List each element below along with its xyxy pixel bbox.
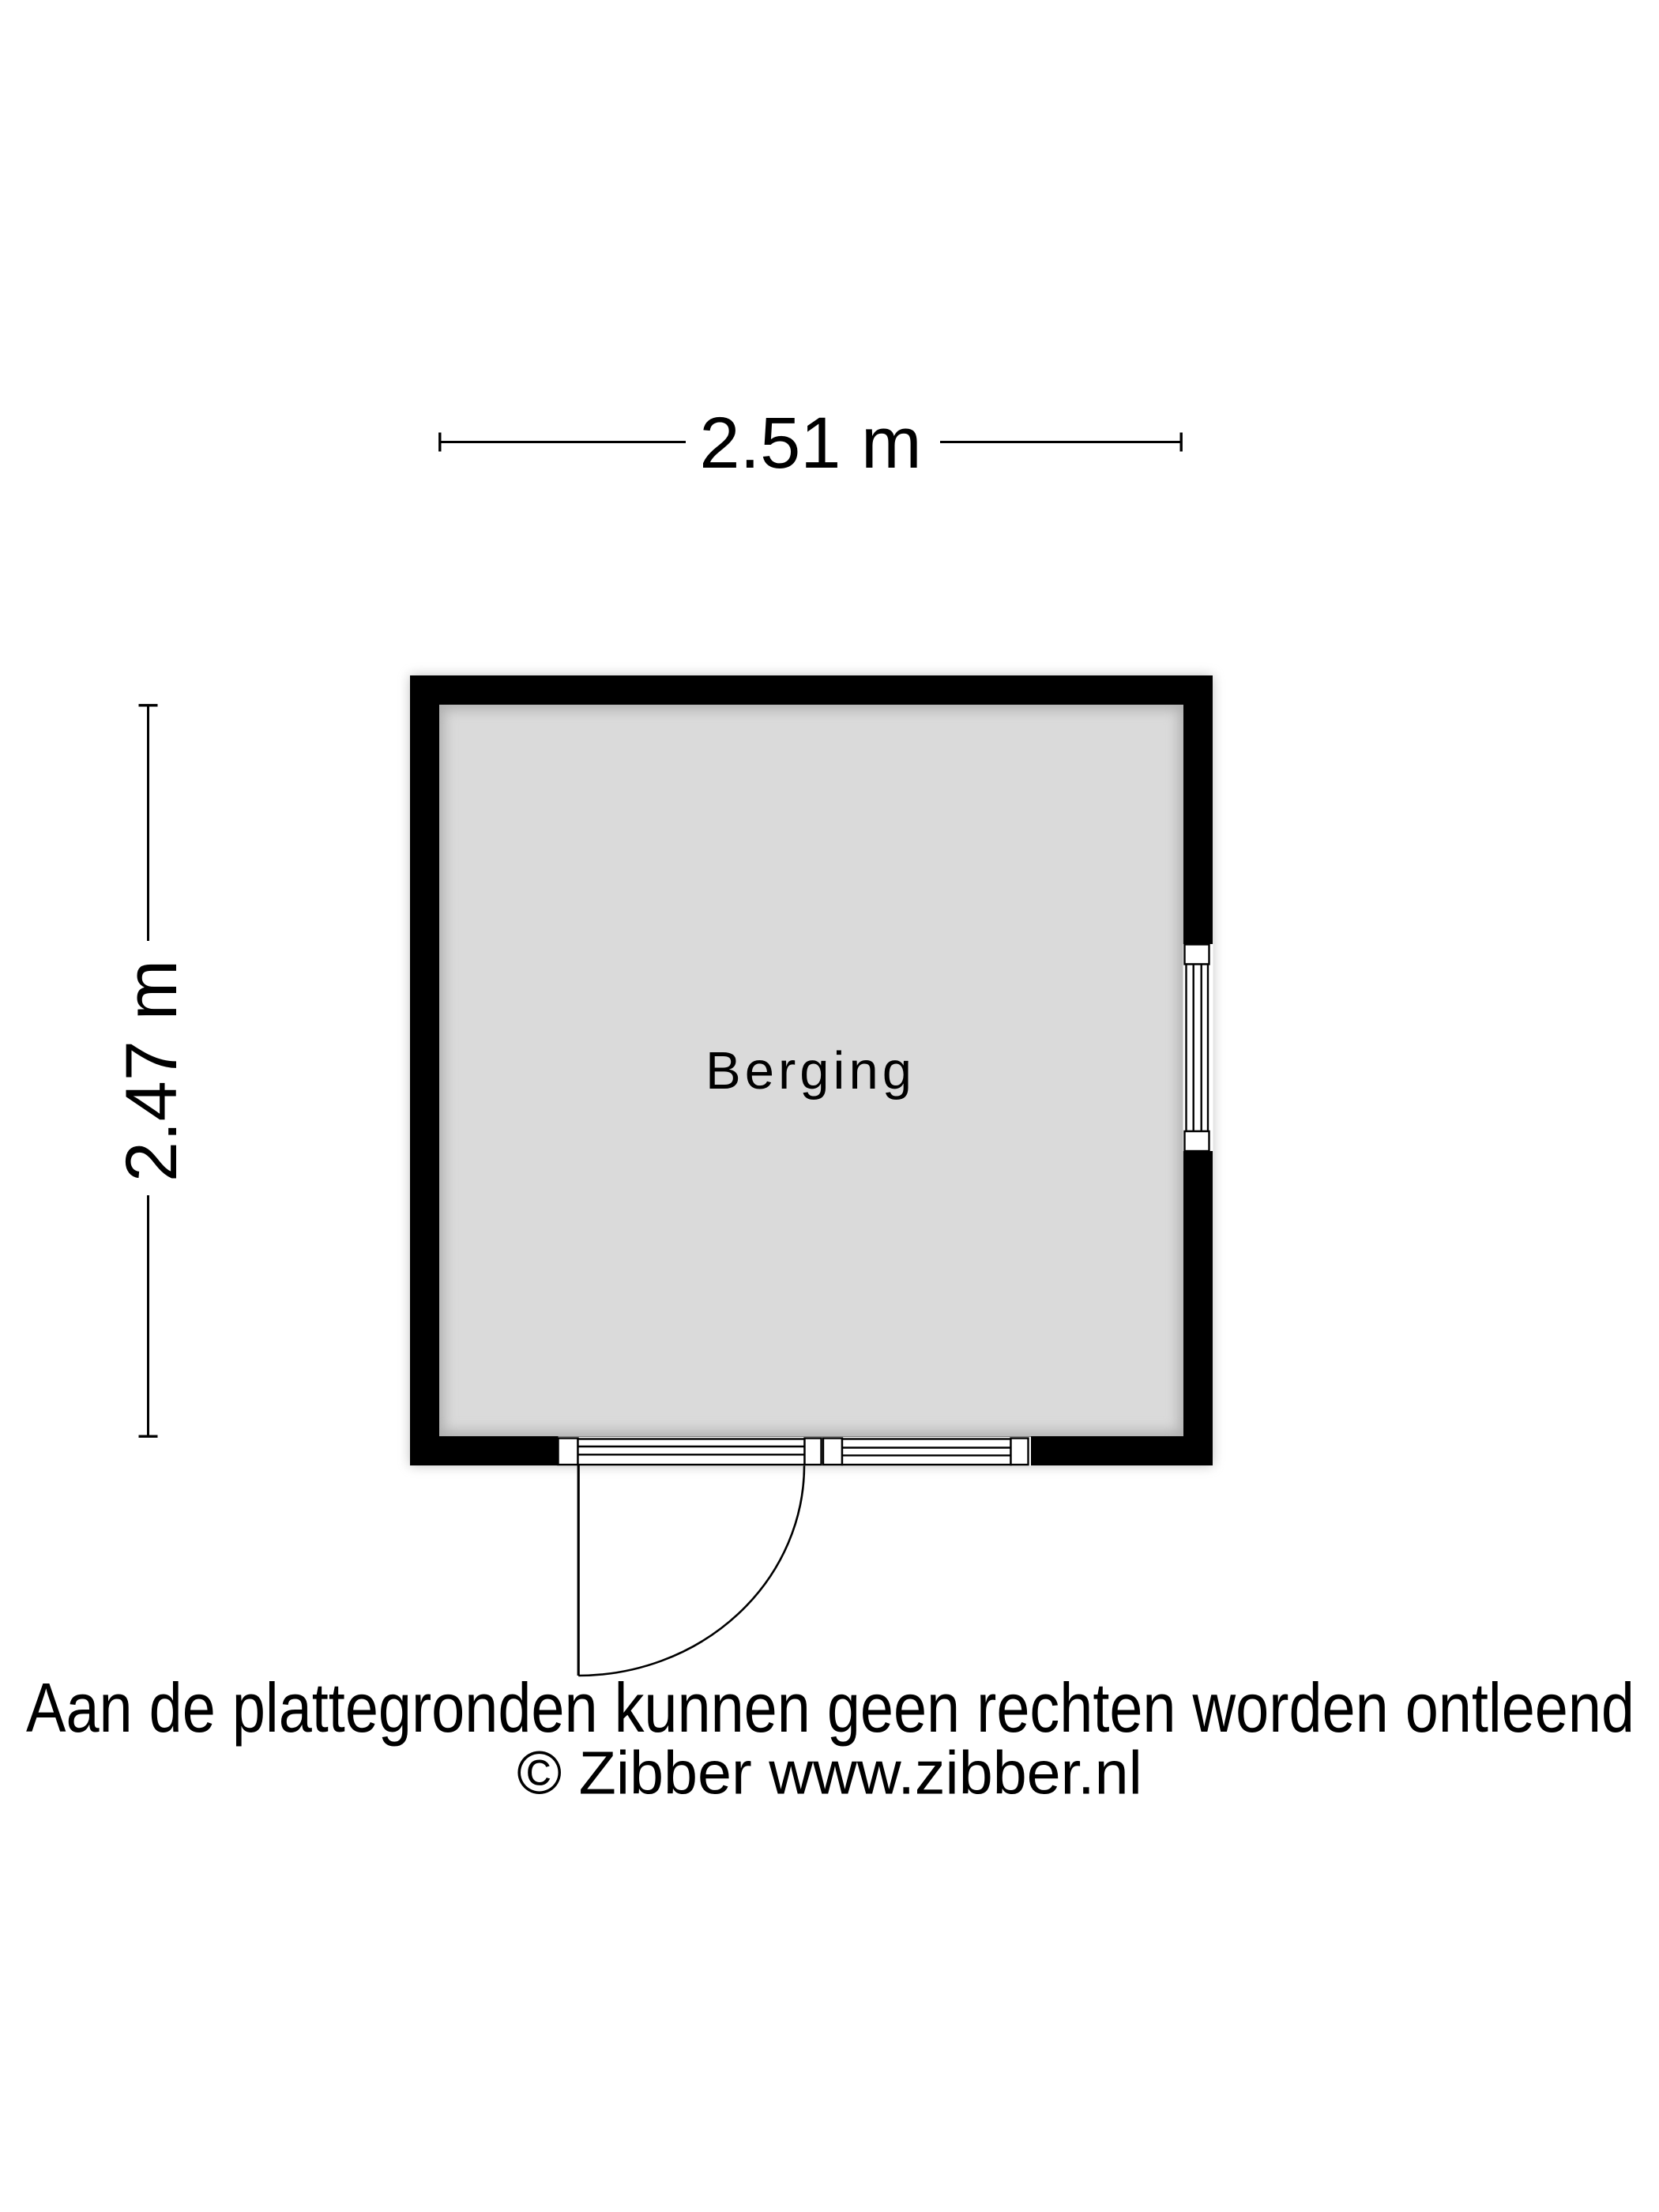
svg-text:2.47 m: 2.47 m — [111, 960, 192, 1182]
svg-text:© Zibber www.zibber.nl: © Zibber www.zibber.nl — [517, 1740, 1142, 1808]
svg-text:Berging: Berging — [705, 1041, 916, 1100]
svg-text:2.51 m: 2.51 m — [699, 403, 921, 483]
svg-text:Aan de plattegronden kunnen ge: Aan de plattegronden kunnen geen rechten… — [26, 1668, 1635, 1747]
